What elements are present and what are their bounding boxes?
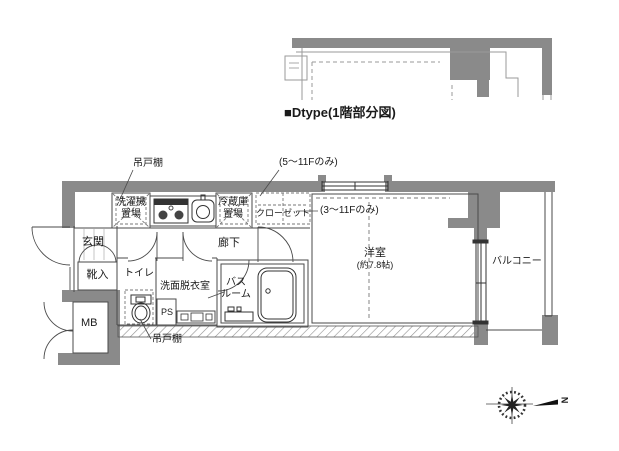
page-title: ■Dtype(1階部分図) — [284, 106, 396, 121]
fridge-space-label: 冷蔵庫 置場 — [214, 197, 252, 220]
floors-3-11-note: (3〜11Fのみ) — [320, 205, 379, 217]
floor-plan-drawing — [0, 0, 619, 451]
toilet-icon — [131, 295, 151, 323]
western-room-label: 洋室 (約7.8帖) — [340, 247, 410, 270]
washroom-label: 洗面脱衣室 — [160, 281, 210, 293]
stove-icon — [154, 199, 188, 223]
toilet-label: トイレ — [124, 268, 154, 280]
bathroom-label: バス ルーム — [217, 277, 255, 300]
corridor-label: 廊下 — [218, 237, 240, 250]
compass-north-label: N — [559, 397, 569, 404]
washroom-counter — [181, 313, 212, 321]
closet-label: クローゼット — [255, 208, 311, 218]
entrance-label: 玄関 — [82, 236, 104, 249]
window-balcony — [473, 240, 488, 324]
shoe-box-label: 靴入 — [78, 269, 117, 282]
washer-space-label: 洗濯機 置場 — [112, 197, 150, 220]
hanging-cupboard-bottom-label: 吊戸棚 — [152, 334, 182, 346]
hanging-cupboard-top-label: 吊戸棚 — [133, 158, 163, 170]
pipe-space-label: PS — [161, 307, 173, 317]
window-top — [322, 181, 388, 191]
floors-5-11-note: (5〜11Fのみ) — [279, 157, 338, 169]
leader-lines — [121, 170, 318, 339]
sink-icon — [192, 195, 214, 222]
adjacent-unit-fragment — [285, 38, 552, 100]
meter-box-label: MB — [81, 317, 98, 330]
floor-plan-canvas: ■Dtype(1階部分図) 吊戸棚 (5〜11Fのみ) 洗濯機 置場 冷蔵庫 置… — [0, 0, 619, 451]
balcony-label: バルコニー — [492, 256, 542, 268]
compass-rose-icon — [486, 387, 558, 424]
